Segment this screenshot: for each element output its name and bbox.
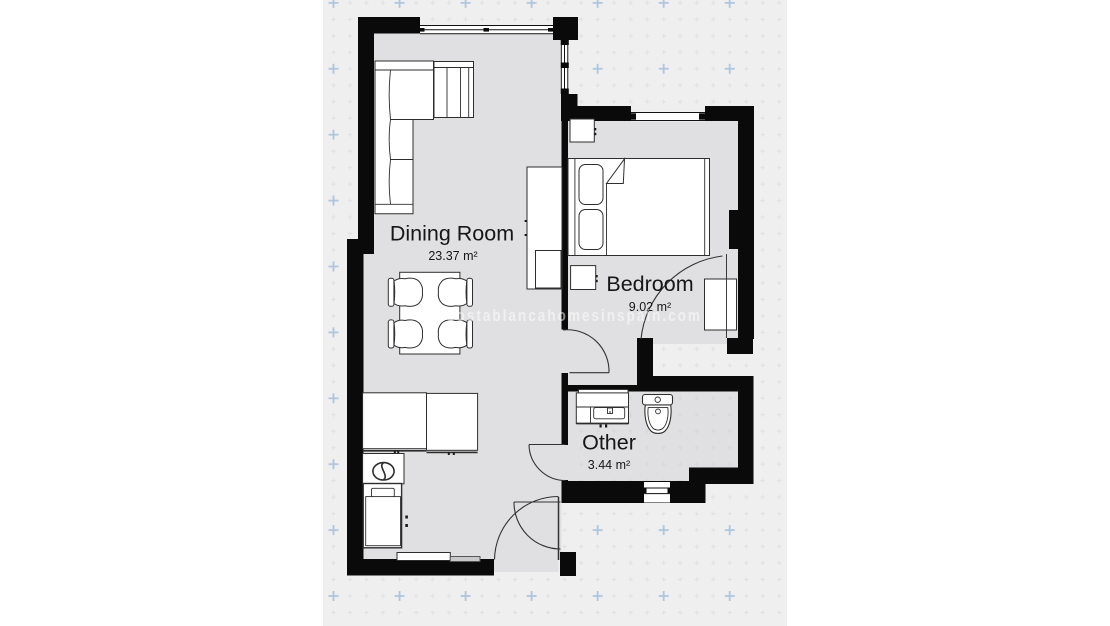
svg-text:23.37 m²: 23.37 m² (428, 249, 477, 263)
svg-text:Other: Other (582, 431, 636, 455)
svg-text:costablancahomesinspain.com: costablancahomesinspain.com (447, 306, 702, 325)
svg-text:Bedroom: Bedroom (606, 272, 693, 296)
svg-text:3.44 m²: 3.44 m² (588, 458, 630, 472)
svg-text:Dining Room: Dining Room (390, 222, 514, 246)
